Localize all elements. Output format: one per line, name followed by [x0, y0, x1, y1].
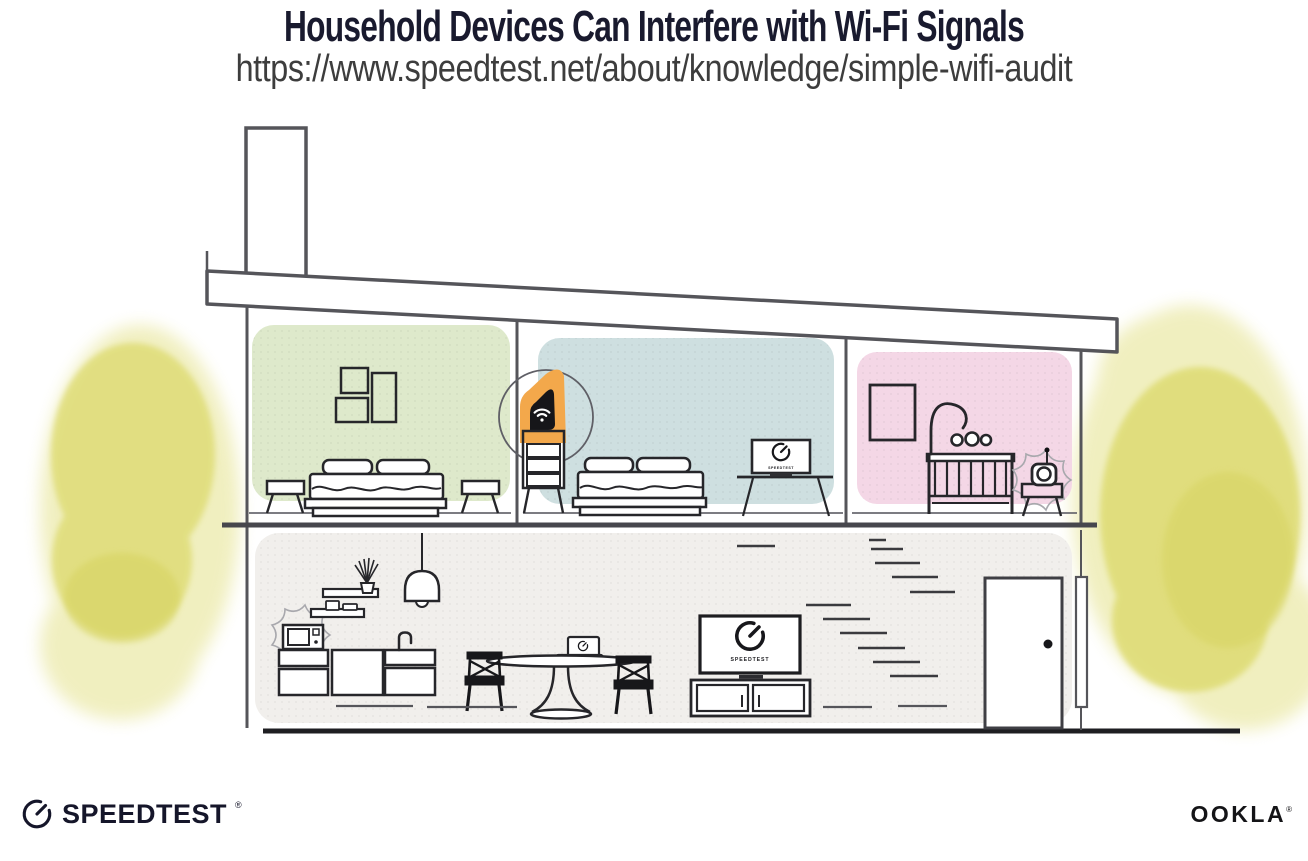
speedtest-wordmark: SPEEDTEST [62, 797, 227, 831]
ookla-trademark: ® [1286, 805, 1292, 814]
tv [700, 616, 800, 673]
foliage-right [1072, 305, 1308, 730]
pillow [323, 460, 372, 474]
tv-stand [739, 675, 763, 679]
speedtest-trademark: ® [235, 800, 242, 810]
speedtest-gauge-icon [20, 797, 54, 831]
ookla-logo: OOKLA® [1191, 799, 1292, 835]
tv-console [691, 680, 810, 716]
bed-base [313, 508, 438, 516]
ookla-wordmark: OOKLA [1191, 801, 1287, 827]
pillow [377, 460, 429, 474]
door-knob [1044, 640, 1053, 649]
kitchen-counter [279, 650, 435, 695]
bed-platform [305, 499, 446, 508]
monitor-screen-label: SPEEDTEST [768, 466, 794, 470]
bed-platform [573, 498, 706, 507]
tv-area [691, 616, 810, 716]
house-illustration: SPEEDTEST [0, 0, 1308, 861]
pillow [585, 458, 633, 472]
infographic: Household Devices Can Interfere with Wi-… [0, 0, 1308, 861]
tv-screen-label: SPEEDTEST [731, 657, 770, 663]
chimney [246, 128, 306, 285]
antenna-tip [1045, 448, 1050, 453]
pillow [637, 458, 690, 472]
desktop-monitor [752, 440, 810, 477]
mattress [578, 472, 703, 498]
speedtest-logo: SPEEDTEST® [20, 797, 242, 831]
foliage-left [40, 325, 240, 720]
bed-base [580, 507, 700, 515]
microwave [283, 625, 323, 649]
front-door [985, 578, 1062, 728]
bed [573, 458, 706, 515]
